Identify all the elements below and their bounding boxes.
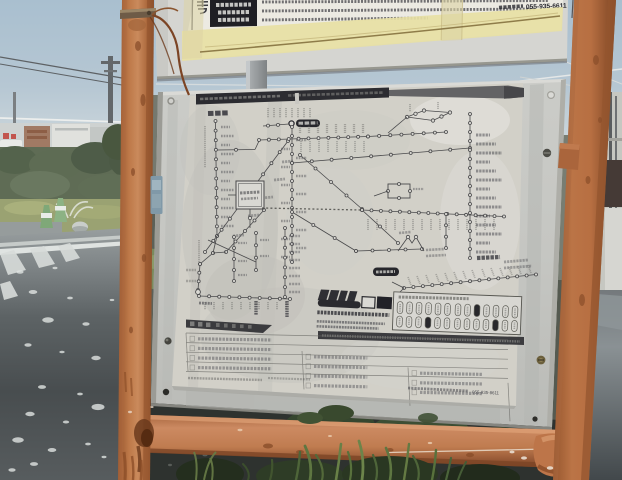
svg-text:055-935-8611: 055-935-8611	[472, 390, 500, 396]
